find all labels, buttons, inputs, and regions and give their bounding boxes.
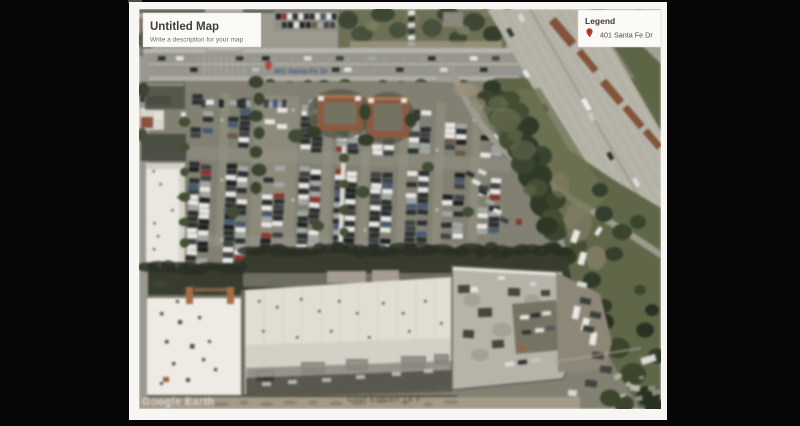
- svg-text:Untitled Map: Untitled Map: [150, 21, 219, 33]
- svg-text:401 Santa Fe Dr: 401 Santa Fe Dr: [600, 31, 653, 40]
- svg-text:Write a description for your m: Write a description for your map: [150, 37, 244, 44]
- svg-text:Govt Exhibit 14 F: Govt Exhibit 14 F: [347, 395, 422, 404]
- svg-text:Google Earth: Google Earth: [142, 396, 215, 408]
- svg-text:Legend: Legend: [585, 16, 615, 26]
- svg-text:401 Santa Fe Dr: 401 Santa Fe Dr: [274, 67, 328, 76]
